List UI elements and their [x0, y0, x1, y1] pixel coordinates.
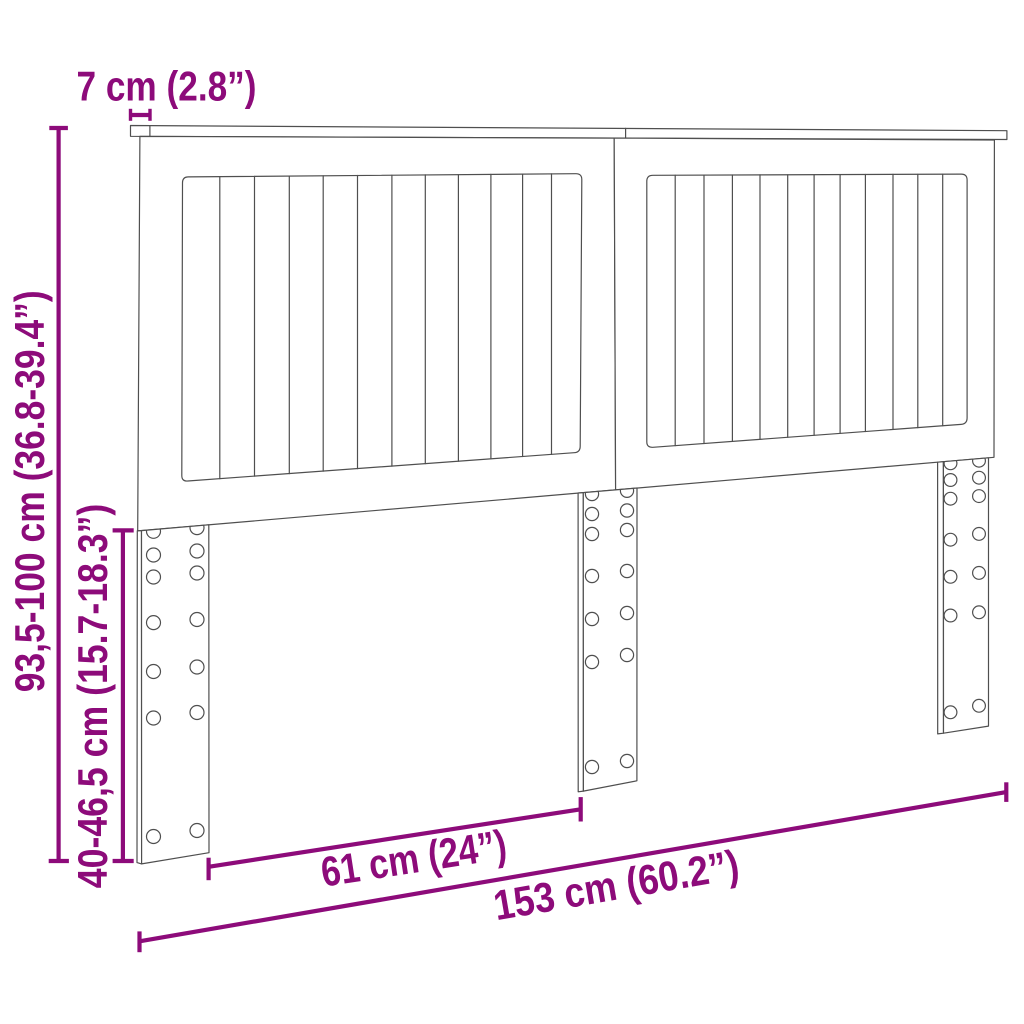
svg-text:93,5-100 cm (36.8-39.4”): 93,5-100 cm (36.8-39.4”) — [6, 290, 53, 692]
svg-text:40-46,5 cm (15.7-18.3”): 40-46,5 cm (15.7-18.3”) — [69, 504, 116, 889]
svg-text:7 cm (2.8”): 7 cm (2.8”) — [77, 63, 257, 110]
